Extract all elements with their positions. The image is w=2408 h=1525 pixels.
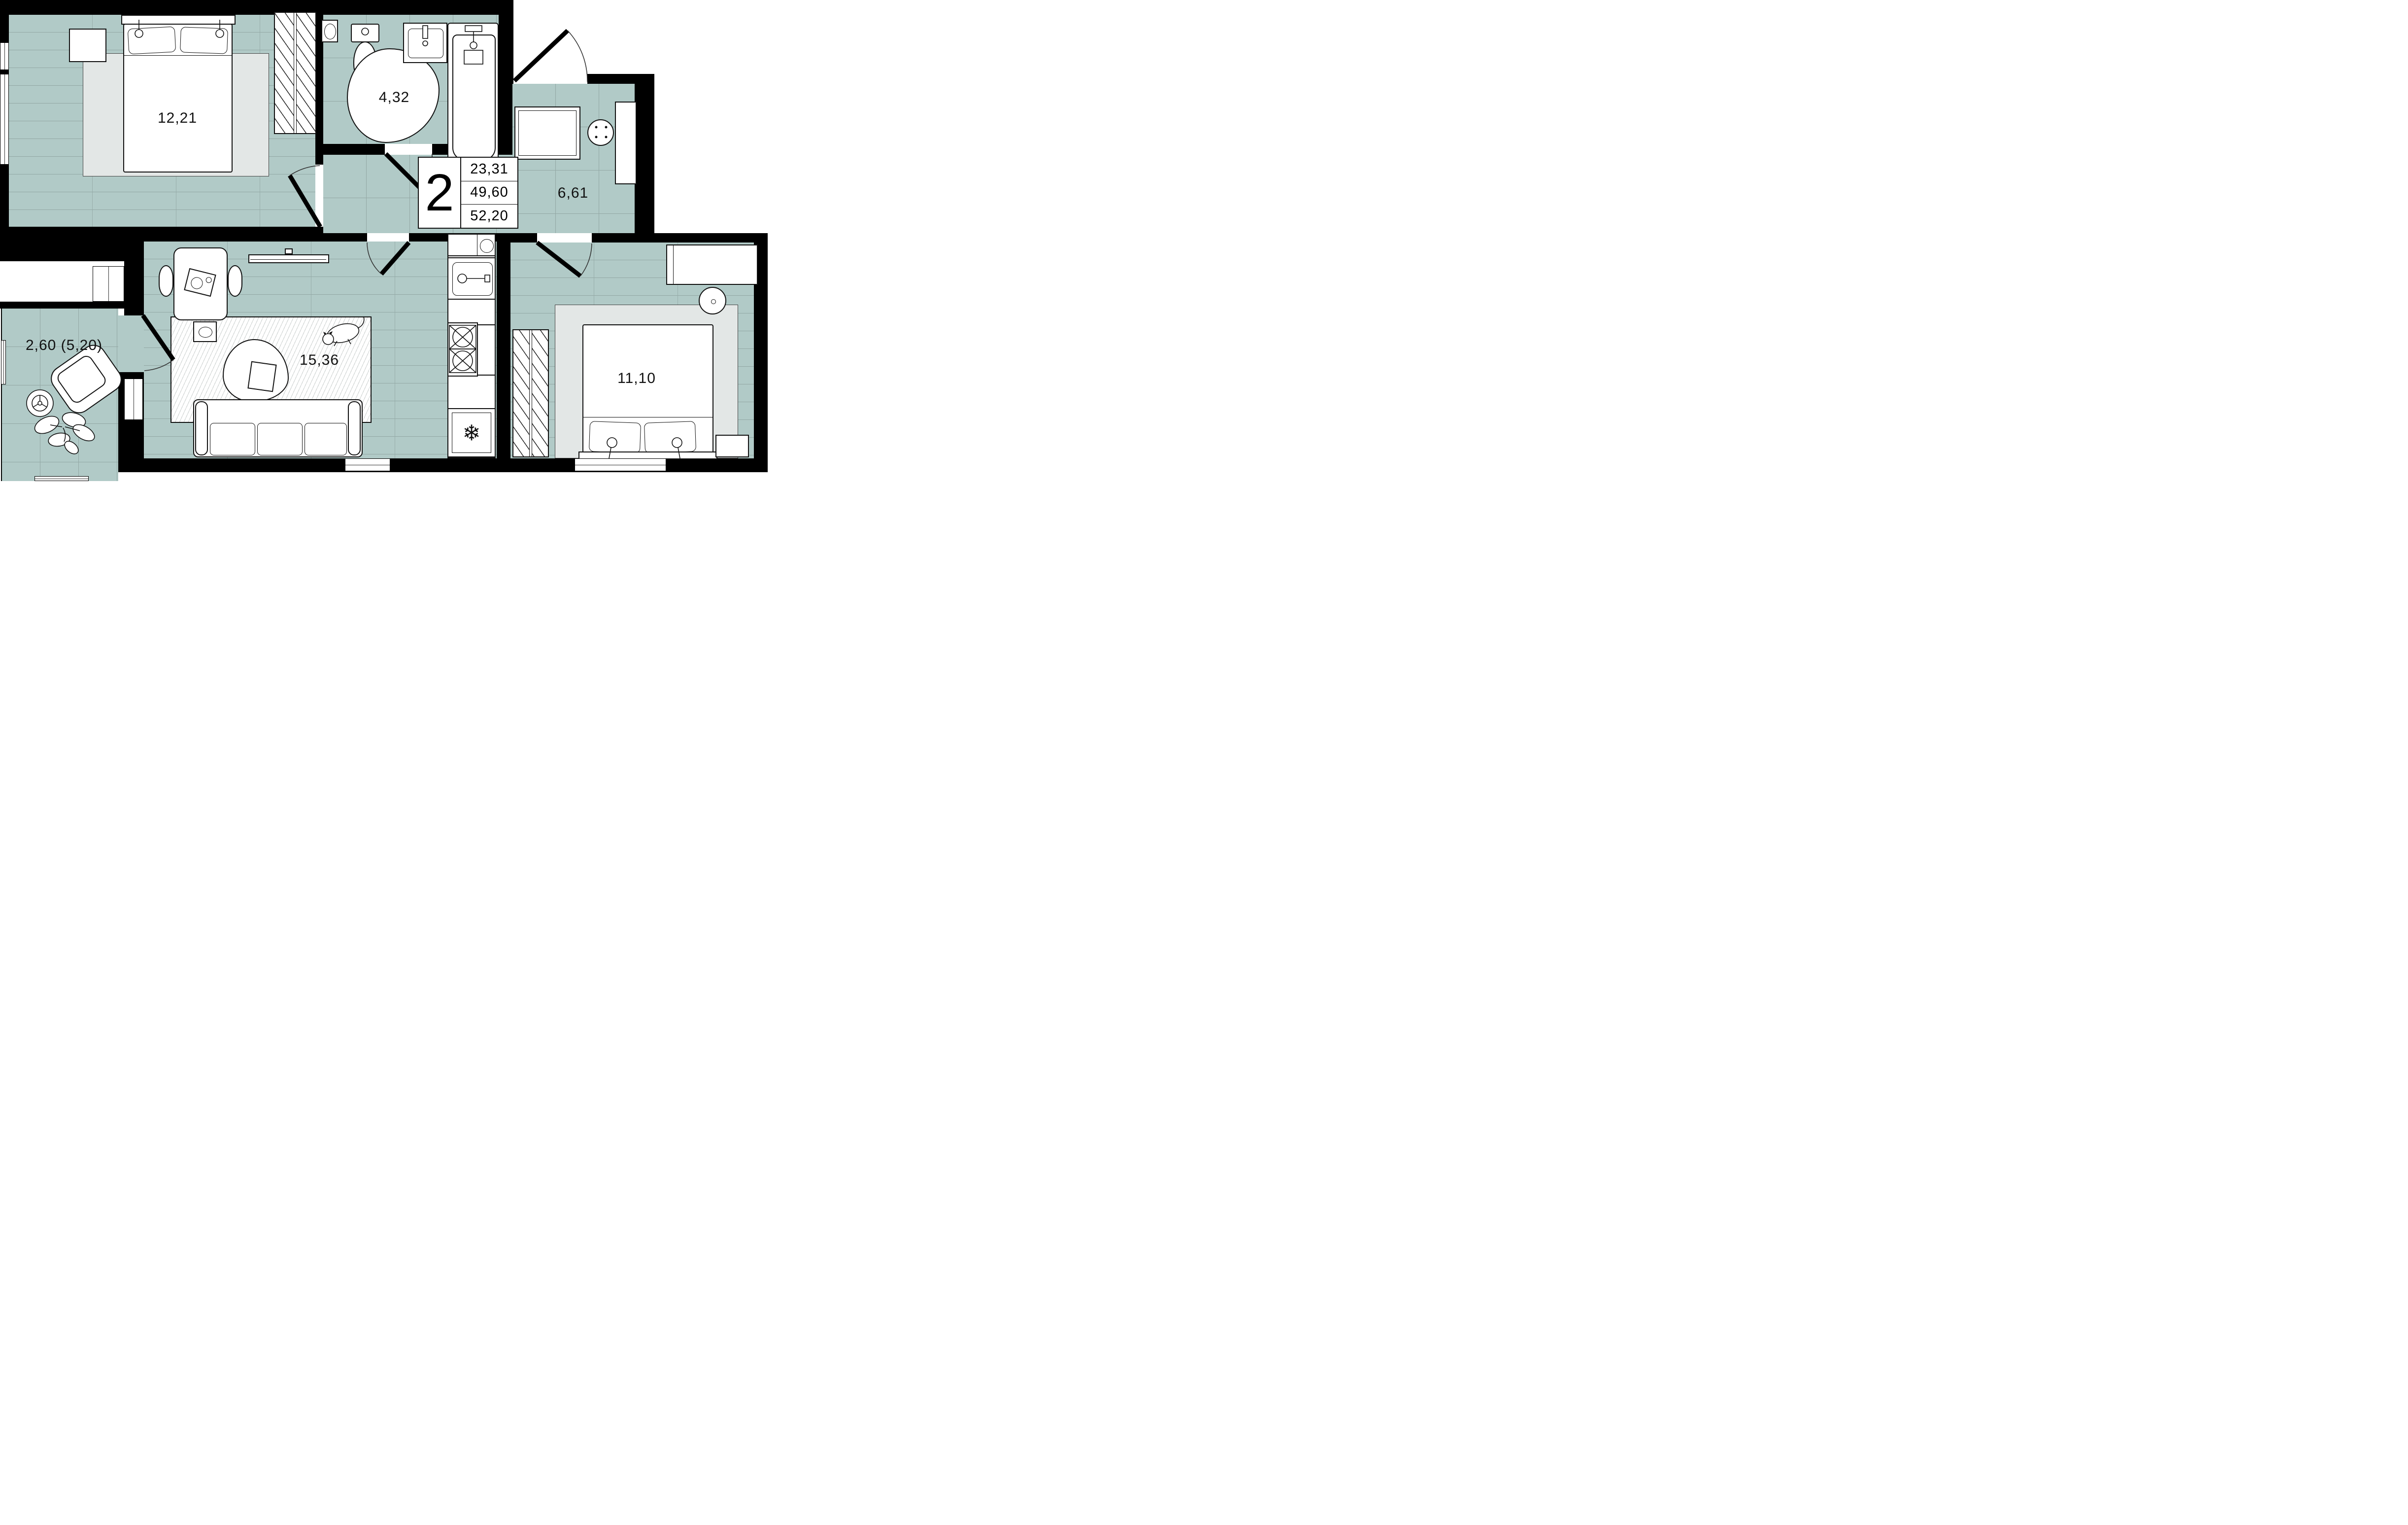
wall: [118, 457, 512, 472]
bedroom1-window-large: [0, 74, 9, 165]
tray-cup: [205, 277, 212, 284]
total-area-value: 52,20: [461, 205, 517, 228]
high-chair: [193, 321, 217, 342]
bedroom2-blanket-fold: [583, 417, 712, 417]
apartment-area-value: 49,60: [461, 181, 517, 205]
hallway-rug-inner: [518, 110, 577, 156]
bathroom-corner-sink-bowl: [324, 24, 336, 39]
balcony-window-left: [1, 340, 6, 384]
sofa-cushion-1: [210, 423, 255, 455]
chair-button: [711, 299, 716, 304]
wall: [323, 144, 385, 155]
bathroom-area-label: 4,32: [379, 89, 409, 106]
wardrobe-rail: [529, 330, 532, 456]
sofa-armrest-right: [348, 401, 361, 455]
living-room-window: [345, 458, 390, 471]
bedroom2-chair: [699, 287, 726, 314]
stove: [447, 322, 478, 377]
desk-edge-line: [673, 245, 674, 284]
rooms-count: 2: [419, 158, 461, 228]
fridge-snowflake-icon: ❄: [463, 421, 481, 446]
bedroom1-nightstand: [69, 29, 106, 62]
washing-machine: [447, 234, 496, 256]
wall: [0, 227, 144, 261]
floor-plan: ❄: [0, 0, 773, 489]
niche-window: [93, 266, 124, 302]
bedroom2-nightstand: [715, 435, 749, 457]
hallway-rug: [514, 106, 580, 160]
tv-screen-line: [250, 259, 326, 260]
hallway-wardrobe: [615, 102, 637, 184]
kitchen-sink-bowl: [452, 262, 493, 296]
balcony-wall-window: [124, 379, 143, 420]
bedroom1-wardrobe: [274, 12, 316, 134]
bedroom2-wardrobe: [512, 329, 549, 457]
entrance-threshold: [513, 75, 587, 83]
wardrobe-rail: [294, 13, 297, 133]
bedroom1-pillow-left: [128, 27, 176, 55]
bathtub: [447, 23, 499, 167]
living-room-area-label: 15,36: [300, 352, 339, 369]
bathroom-sink-basin: [408, 29, 443, 58]
tray-plate: [190, 276, 204, 290]
bedroom1-area-label: 12,21: [158, 110, 197, 127]
balcony-doorway-floor: [118, 315, 144, 372]
bedroom2-pillow-left: [589, 421, 641, 453]
oven: [477, 324, 496, 376]
bedroom1-window-small: [0, 42, 9, 70]
apartment-info-box: 2 23,31 49,60 52,20: [418, 157, 518, 229]
sofa-cushion-2: [257, 423, 303, 455]
balcony-area-label: 2,60 (5,20): [26, 337, 102, 354]
bedroom2-pillow-right: [644, 421, 696, 453]
washer-door: [480, 239, 494, 253]
bedroom1-blanket-fold: [124, 55, 232, 56]
wall: [124, 261, 144, 315]
dining-chair-right: [228, 265, 242, 297]
toilet-tank: [351, 24, 379, 42]
wall: [497, 233, 510, 458]
wall: [0, 302, 124, 309]
bathtub-inner: [452, 35, 496, 161]
bedroom2-window: [575, 458, 666, 471]
high-chair-seat: [199, 327, 212, 338]
dining-chair-left: [159, 265, 173, 297]
bedroom1-headboard: [121, 15, 236, 25]
magazine: [247, 361, 276, 392]
wall: [0, 0, 510, 15]
sofa-armrest-left: [195, 401, 208, 455]
hallway-pouf: [587, 119, 614, 146]
wall: [635, 74, 654, 242]
bedroom2-area-label: 11,10: [617, 370, 656, 387]
tv-panel: [248, 254, 329, 263]
sofa-cushion-3: [305, 423, 347, 455]
tv-mount: [285, 248, 293, 254]
bathroom-sink: [403, 23, 447, 63]
bedroom2-desk: [666, 244, 758, 285]
kitchen-sink-unit: [447, 257, 496, 300]
bedroom1-pillow-right: [180, 27, 228, 54]
wall: [499, 0, 513, 155]
hallway-area-label: 6,61: [558, 185, 588, 202]
balcony-window-bottom: [34, 476, 89, 481]
washer-divider: [477, 235, 477, 255]
living-area-value: 23,31: [461, 158, 517, 181]
